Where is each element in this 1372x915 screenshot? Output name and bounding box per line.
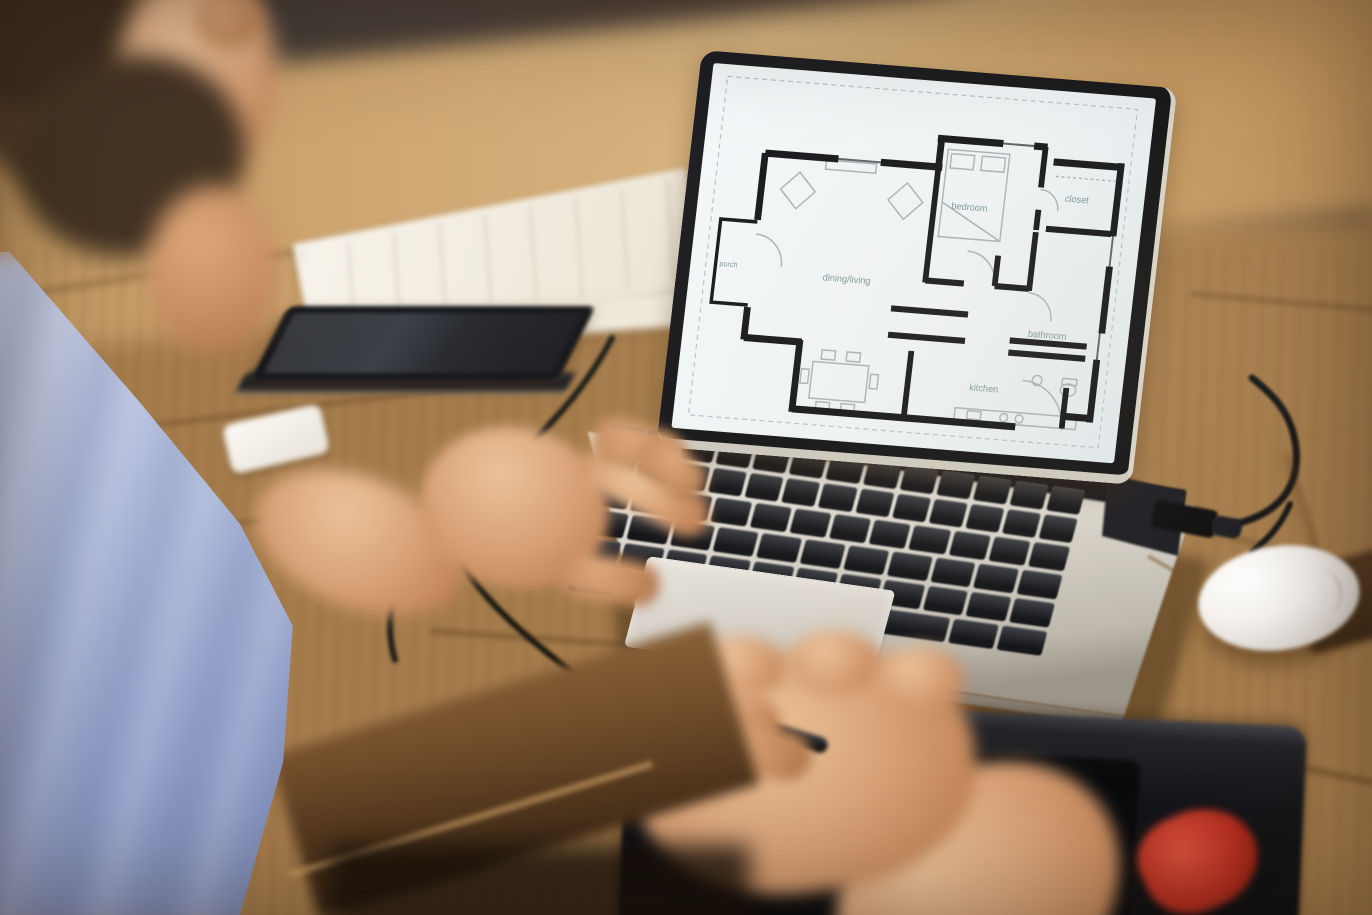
under-desk-shadow bbox=[330, 845, 750, 915]
photo-scene: bedroom closet bathroom kitchen dining/l… bbox=[0, 0, 1372, 915]
usb-plug bbox=[1150, 499, 1244, 544]
right-knuckle bbox=[876, 646, 964, 712]
right-knuckle bbox=[788, 630, 880, 694]
man-neck bbox=[148, 186, 278, 356]
usb-cable bbox=[1235, 378, 1296, 524]
